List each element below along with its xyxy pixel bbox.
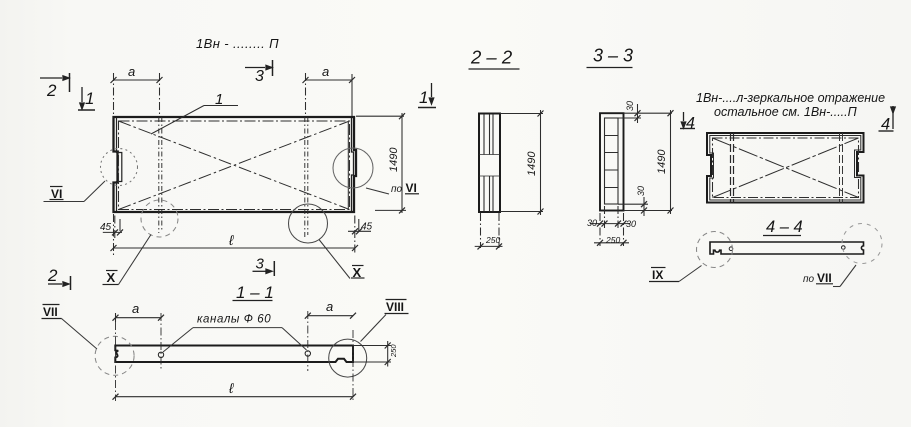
svg-text:3: 3 [255, 68, 264, 85]
svg-text:VI: VI [406, 181, 417, 195]
svg-text:VIII: VIII [386, 300, 404, 314]
svg-text:45: 45 [361, 222, 373, 233]
svg-text:1490: 1490 [388, 147, 400, 172]
svg-text:45: 45 [100, 222, 112, 233]
svg-text:2: 2 [46, 81, 57, 100]
svg-text:30: 30 [636, 186, 646, 196]
svg-text:30: 30 [625, 101, 635, 111]
svg-text:4 – 4: 4 – 4 [766, 218, 803, 236]
svg-text:3: 3 [256, 256, 265, 273]
svg-text:4: 4 [881, 116, 890, 134]
svg-text:ℓ: ℓ [228, 380, 234, 396]
svg-text:2: 2 [47, 266, 58, 285]
svg-text:250: 250 [485, 235, 500, 245]
svg-text:a: a [128, 64, 135, 79]
svg-text:каналы Ф 60: каналы Ф 60 [197, 314, 271, 326]
svg-text:VII: VII [817, 271, 832, 285]
svg-text:250: 250 [605, 235, 620, 245]
svg-text:3 – 3: 3 – 3 [593, 46, 633, 66]
svg-text:30: 30 [587, 218, 597, 228]
svg-text:4: 4 [686, 115, 695, 132]
svg-text:a: a [326, 299, 333, 314]
svg-text:VII: VII [43, 305, 58, 319]
svg-text:a: a [132, 301, 139, 316]
svg-text:ℓ: ℓ [228, 232, 234, 248]
svg-text:остальное см. 1Вн-.....П: остальное см. 1Вн-.....П [714, 105, 858, 119]
svg-text:1Вн - ........ П: 1Вн - ........ П [196, 36, 279, 51]
svg-text:X: X [107, 270, 116, 285]
svg-text:30: 30 [626, 219, 636, 229]
svg-text:1: 1 [419, 88, 428, 107]
svg-text:1490: 1490 [656, 149, 668, 174]
svg-text:2 – 2: 2 – 2 [470, 47, 513, 68]
svg-text:1 – 1: 1 – 1 [236, 283, 274, 302]
svg-text:a: a [322, 64, 329, 79]
svg-text:1: 1 [85, 89, 94, 108]
svg-text:1Вн-....л-зеркальное отражени: 1Вн-....л-зеркальное отражение [696, 91, 885, 105]
svg-text:250: 250 [389, 344, 398, 358]
svg-text:IX: IX [652, 268, 663, 282]
svg-text:по: по [803, 274, 815, 285]
svg-text:по: по [391, 184, 403, 195]
svg-text:1490: 1490 [526, 151, 538, 176]
